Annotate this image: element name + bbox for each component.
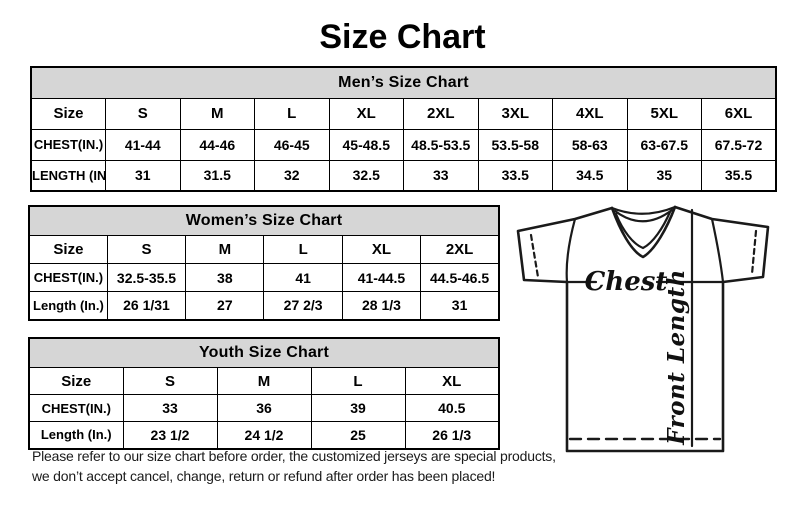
size-column-header: XL <box>329 98 404 129</box>
measurement-row-label: Length (In.) <box>29 422 123 449</box>
size-chart-page: Size Chart Men’s Size ChartSizeSMLXL2XL3… <box>0 0 805 512</box>
measurement-value: 33 <box>123 395 217 422</box>
measurement-value: 36 <box>217 395 311 422</box>
measurement-row: Length (In.)26 1/312727 2/328 1/331 <box>29 292 499 320</box>
measurement-value: 44.5-46.5 <box>421 264 499 292</box>
measurement-value: 41 <box>264 264 342 292</box>
measurement-row: LENGTH (IN.)3131.53232.53333.534.53535.5 <box>31 160 776 191</box>
measurement-row: CHEST(IN.)33363940.5 <box>29 395 499 422</box>
disclaimer-text: Please refer to our size chart before or… <box>32 447 592 486</box>
size-column-header: L <box>264 236 342 264</box>
disclaimer-line-2: we don’t accept cancel, change, return o… <box>32 468 495 484</box>
size-column-header: S <box>106 98 181 129</box>
size-column-header: M <box>180 98 255 129</box>
measurement-row: CHEST(IN.)32.5-35.5384141-44.544.5-46.5 <box>29 264 499 292</box>
measurement-row-label: LENGTH (IN.) <box>31 160 106 191</box>
size-column-header: 2XL <box>404 98 479 129</box>
measurement-value: 40.5 <box>405 395 499 422</box>
tshirt-left-sleeve-seam <box>567 219 575 282</box>
table-title: Youth Size Chart <box>29 338 499 368</box>
tshirt-body-outline <box>567 282 723 451</box>
size-header-row: SizeSMLXL2XL <box>29 236 499 264</box>
measurement-value: 32.5 <box>329 160 404 191</box>
chest-label: Chest <box>585 267 668 297</box>
womens-size-table: Women’s Size ChartSizeSMLXL2XLCHEST(IN.)… <box>28 205 500 321</box>
size-column-header: L <box>255 98 330 129</box>
size-label: Size <box>31 98 106 129</box>
measurement-row-label: CHEST(IN.) <box>29 395 123 422</box>
measurement-value: 63-67.5 <box>627 129 702 160</box>
measurement-value: 33 <box>404 160 479 191</box>
measurement-row: Length (In.)23 1/224 1/22526 1/3 <box>29 422 499 449</box>
measurement-row-label: CHEST(IN.) <box>31 129 106 160</box>
size-header-row: SizeSMLXL <box>29 368 499 395</box>
measurement-value: 31.5 <box>180 160 255 191</box>
size-column-header: XL <box>405 368 499 395</box>
table-title: Men’s Size Chart <box>31 67 776 98</box>
size-column-header: 3XL <box>478 98 553 129</box>
measurement-value: 53.5-58 <box>478 129 553 160</box>
measurement-value: 34.5 <box>553 160 628 191</box>
measurement-value: 25 <box>311 422 405 449</box>
size-header-row: SizeSMLXL2XL3XL4XL5XL6XL <box>31 98 776 129</box>
measurement-value: 39 <box>311 395 405 422</box>
mens-size-chart-section: Men’s Size ChartSizeSMLXL2XL3XL4XL5XL6XL… <box>30 66 777 192</box>
disclaimer-line-1: Please refer to our size chart before or… <box>32 448 556 464</box>
measurement-value: 46-45 <box>255 129 330 160</box>
youth-size-chart-section: Youth Size ChartSizeSMLXLCHEST(IN.)33363… <box>28 337 500 450</box>
table-title-row: Youth Size Chart <box>29 338 499 368</box>
womens-size-chart-section: Women’s Size ChartSizeSMLXL2XLCHEST(IN.)… <box>28 205 500 321</box>
measurement-value: 38 <box>186 264 264 292</box>
measurement-row-label: Length (In.) <box>29 292 107 320</box>
shirt-measurement-diagram: Chest Front Length <box>495 194 805 464</box>
size-label: Size <box>29 368 123 395</box>
measurement-value: 44-46 <box>180 129 255 160</box>
measurement-value: 24 1/2 <box>217 422 311 449</box>
page-title: Size Chart <box>0 18 805 56</box>
measurement-value: 26 1/3 <box>405 422 499 449</box>
table-title-row: Women’s Size Chart <box>29 206 499 236</box>
measurement-row-label: CHEST(IN.) <box>29 264 107 292</box>
right-cuff-stitch-line <box>752 231 756 274</box>
measurement-value: 35.5 <box>702 160 777 191</box>
size-column-header: S <box>107 236 185 264</box>
measurement-value: 67.5-72 <box>702 129 777 160</box>
size-column-header: S <box>123 368 217 395</box>
size-column-header: 5XL <box>627 98 702 129</box>
youth-size-table: Youth Size ChartSizeSMLXLCHEST(IN.)33363… <box>28 337 500 450</box>
size-column-header: 4XL <box>553 98 628 129</box>
front-length-label: Front Length <box>663 269 690 446</box>
measurement-value: 41-44.5 <box>342 264 420 292</box>
size-column-header: XL <box>342 236 420 264</box>
measurement-value: 27 <box>186 292 264 320</box>
tshirt-collar-back <box>612 207 675 214</box>
mens-size-table: Men’s Size ChartSizeSMLXL2XL3XL4XL5XL6XL… <box>30 66 777 192</box>
measurement-value: 35 <box>627 160 702 191</box>
measurement-value: 45-48.5 <box>329 129 404 160</box>
measurement-row: CHEST(IN.)41-4444-4646-4545-48.548.5-53.… <box>31 129 776 160</box>
measurement-value: 28 1/3 <box>342 292 420 320</box>
measurement-value: 31 <box>106 160 181 191</box>
measurement-value: 31 <box>421 292 499 320</box>
measurement-value: 58-63 <box>553 129 628 160</box>
measurement-value: 32.5-35.5 <box>107 264 185 292</box>
measurement-value: 26 1/31 <box>107 292 185 320</box>
measurement-value: 27 2/3 <box>264 292 342 320</box>
tshirt-right-sleeve-seam <box>712 219 723 282</box>
size-label: Size <box>29 236 107 264</box>
left-cuff-stitch-line <box>531 235 538 277</box>
measurement-value: 48.5-53.5 <box>404 129 479 160</box>
table-title: Women’s Size Chart <box>29 206 499 236</box>
measurement-value: 33.5 <box>478 160 553 191</box>
size-column-header: 2XL <box>421 236 499 264</box>
measurement-value: 23 1/2 <box>123 422 217 449</box>
measurement-value: 41-44 <box>106 129 181 160</box>
size-column-header: M <box>186 236 264 264</box>
size-column-header: M <box>217 368 311 395</box>
table-title-row: Men’s Size Chart <box>31 67 776 98</box>
size-column-header: 6XL <box>702 98 777 129</box>
size-column-header: L <box>311 368 405 395</box>
tshirt-diagram-svg: Chest Front Length <box>495 194 805 464</box>
measurement-value: 32 <box>255 160 330 191</box>
